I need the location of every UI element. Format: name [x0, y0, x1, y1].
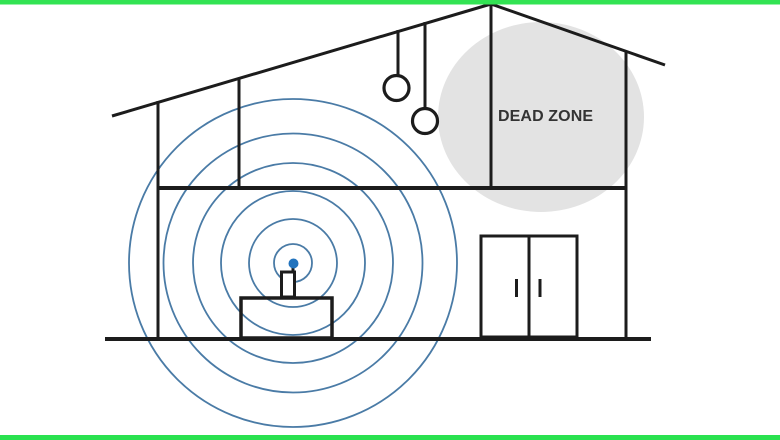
svg-text:DEAD ZONE: DEAD ZONE	[498, 108, 593, 125]
